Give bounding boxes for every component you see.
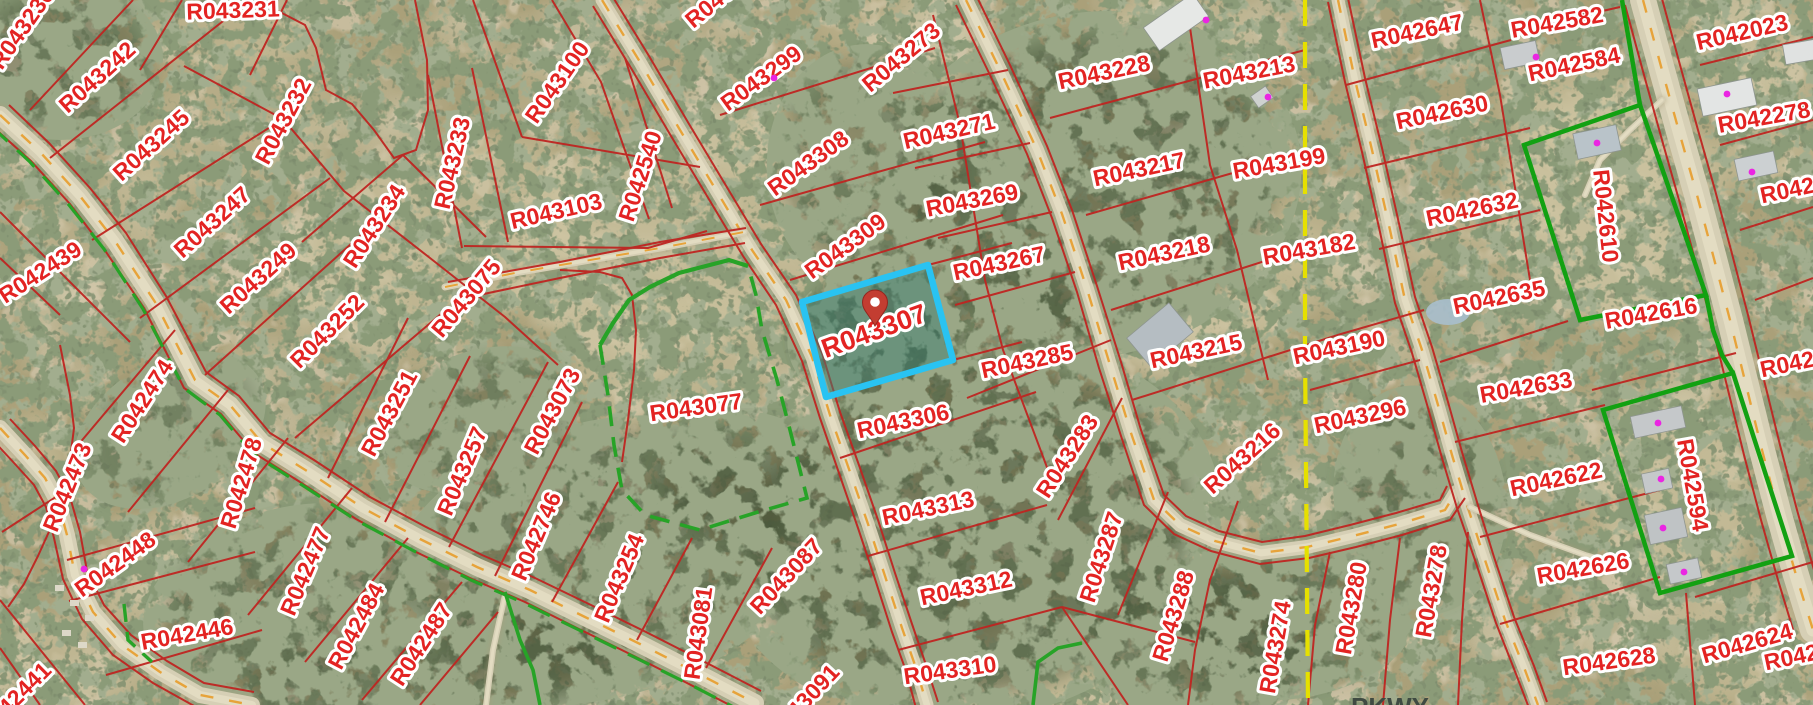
svg-text:R043231: R043231 (186, 0, 280, 25)
svg-text:PKWY: PKWY (1351, 692, 1429, 705)
